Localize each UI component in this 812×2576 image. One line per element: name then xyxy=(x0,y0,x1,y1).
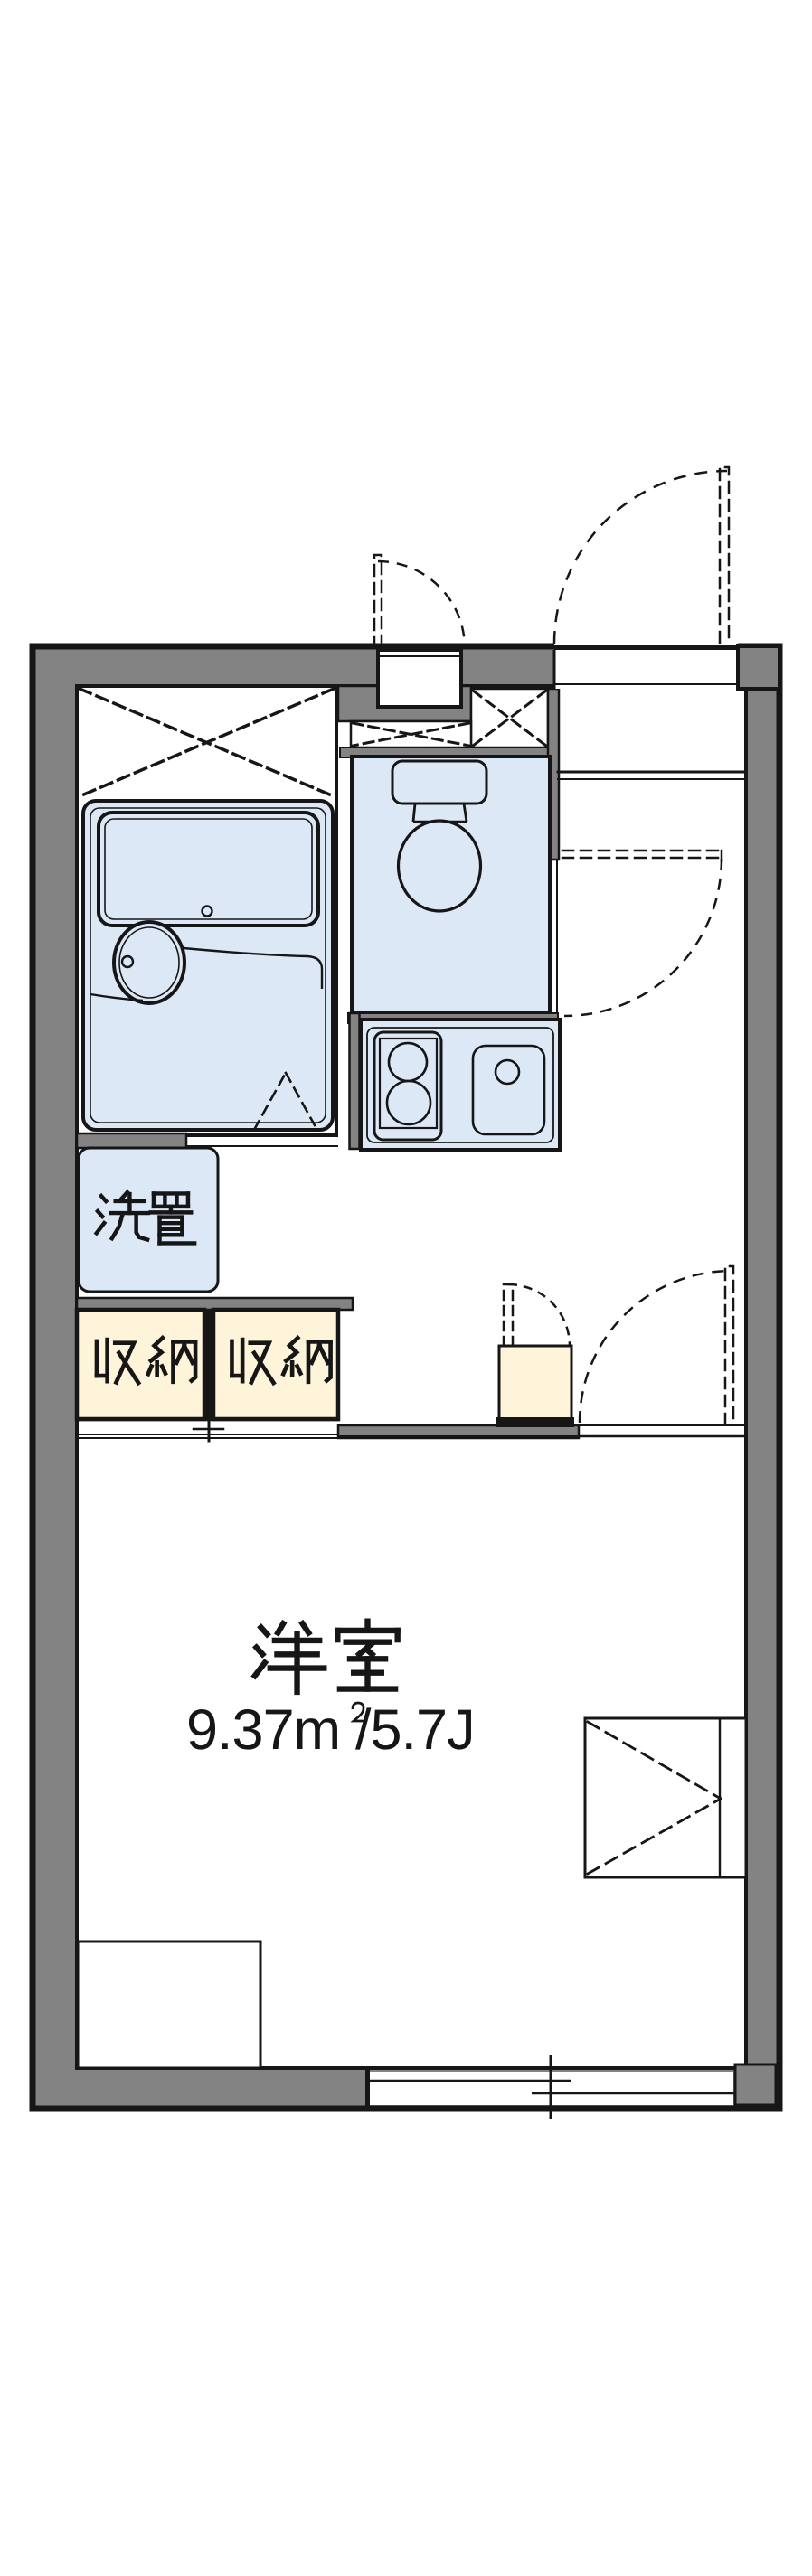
svg-text:9.37m: 9.37m xyxy=(186,1698,340,1762)
svg-text:/5.7J: /5.7J xyxy=(355,1698,475,1762)
